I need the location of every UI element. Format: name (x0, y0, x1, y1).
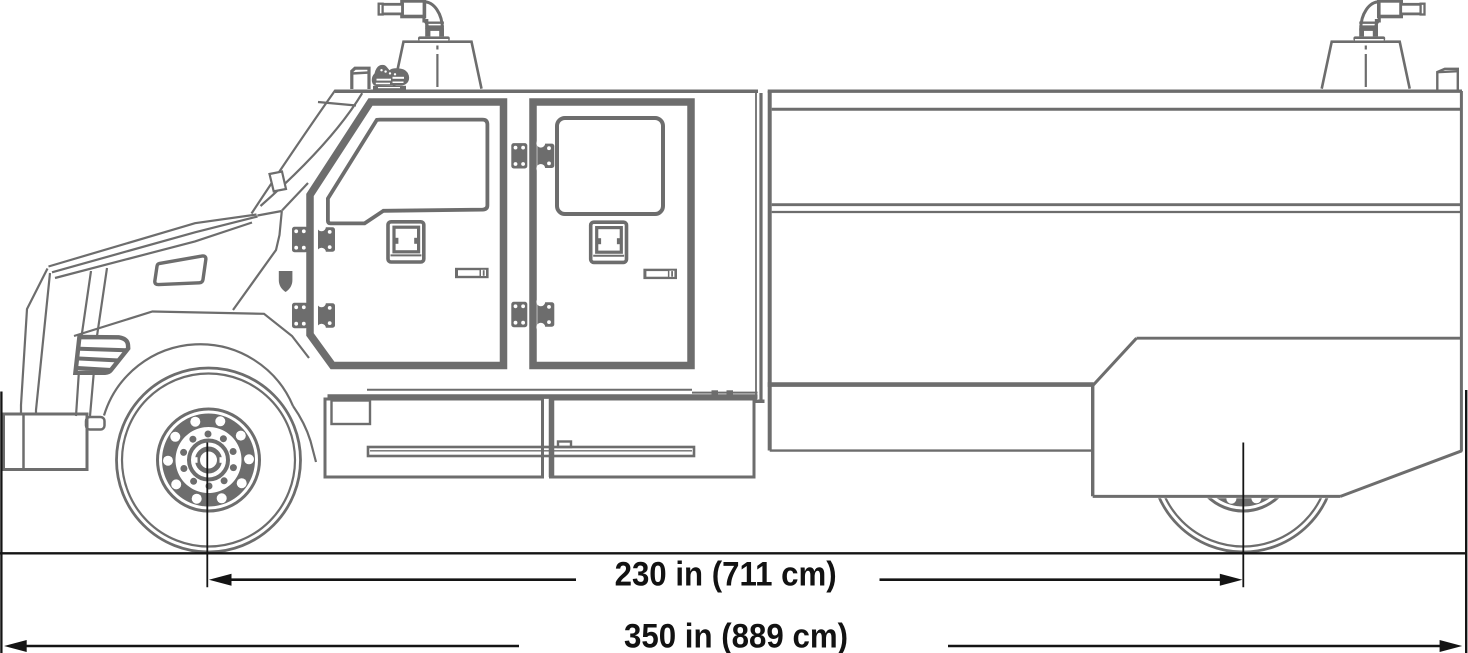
svg-text:230 in (711 cm): 230 in (711 cm) (615, 555, 837, 593)
svg-text:350 in (889 cm): 350 in (889 cm) (624, 618, 848, 653)
